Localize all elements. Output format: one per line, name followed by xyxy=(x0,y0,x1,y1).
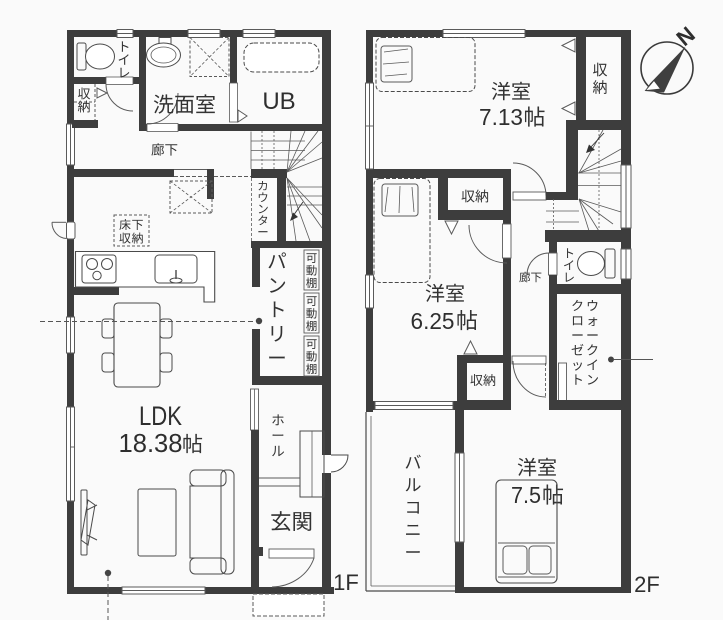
svg-text:6.25: 6.25 xyxy=(411,308,455,334)
svg-text:18.38: 18.38 xyxy=(119,428,183,458)
svg-text:7.13: 7.13 xyxy=(479,104,523,130)
svg-text:UB: UB xyxy=(262,88,295,115)
svg-text:7.5: 7.5 xyxy=(511,482,541,508)
svg-text:LDK: LDK xyxy=(139,401,182,431)
svg-text:1F: 1F xyxy=(333,570,359,595)
svg-text:2F: 2F xyxy=(634,572,660,597)
